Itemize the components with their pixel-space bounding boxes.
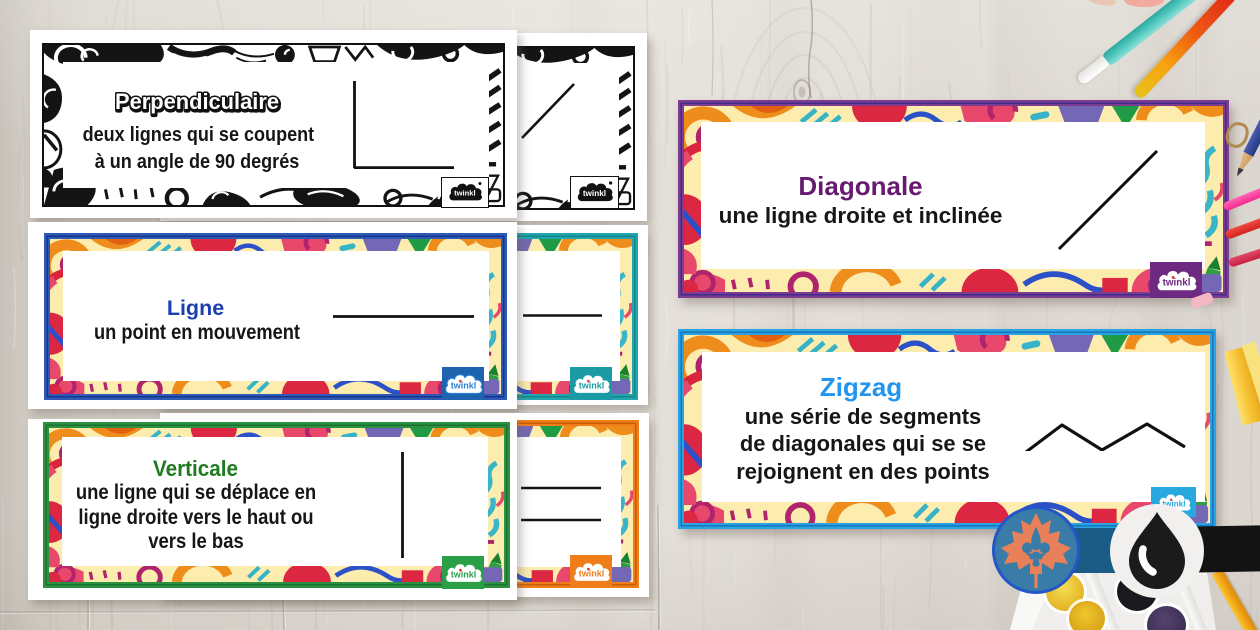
- svg-text:twinkl: twinkl: [579, 569, 605, 579]
- svg-text:twinkl: twinkl: [454, 189, 476, 198]
- svg-text:twinkl: twinkl: [451, 570, 477, 580]
- svg-text:twinkl: twinkl: [451, 381, 477, 391]
- svg-text:twinkl: twinkl: [1162, 277, 1190, 288]
- svg-text:Perpendiculaire: Perpendiculaire: [115, 89, 279, 114]
- svg-text:twinkl: twinkl: [583, 189, 606, 198]
- svg-text:twinkl: twinkl: [579, 381, 605, 391]
